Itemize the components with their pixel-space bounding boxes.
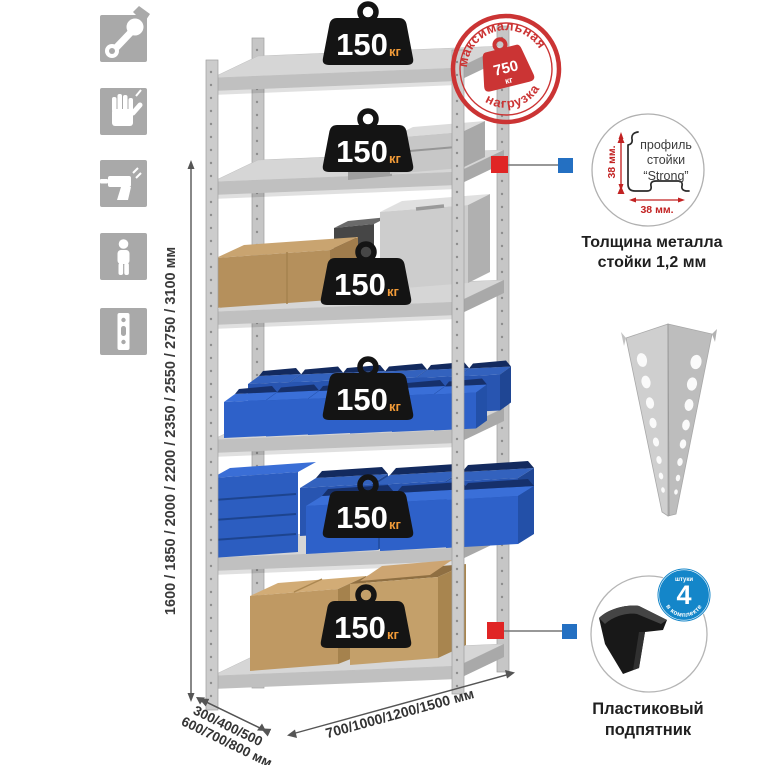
marker-blue-bottom: [562, 624, 577, 639]
product-infographic: 1600 / 1850 / 2000 / 2200 / 2350 / 2550 …: [0, 0, 765, 765]
height-dimension: 1600 / 1850 / 2000 / 2200 / 2350 / 2550 …: [163, 160, 195, 702]
svg-text:150: 150: [334, 610, 386, 645]
gloves-icon: [100, 88, 147, 135]
side-icon-column: [100, 6, 150, 355]
depth-dimension: 300/400/500 600/700/800 мм: [179, 697, 281, 765]
svg-text:кг: кг: [389, 151, 402, 166]
svg-text:кг: кг: [389, 517, 402, 532]
foot-caption-1: Пластиковый: [592, 700, 703, 718]
marker-blue-top: [558, 158, 573, 173]
shelf-load-badge: 150 кг: [323, 111, 414, 172]
profile-dim-bottom: 38 мм.: [640, 204, 673, 216]
profile-detail: 38 мм. 38 мм. профиль стойки “Strong”: [592, 114, 704, 226]
load-value: 150: [336, 27, 388, 62]
svg-text:кг: кг: [387, 284, 400, 299]
upright-profile-icon: [100, 308, 147, 355]
profile-label-1: профиль: [640, 138, 692, 152]
profile-dim-side: 38 мм.: [606, 145, 618, 178]
profile-caption-2: стойки 1,2 мм: [598, 254, 707, 271]
profile-label-3: “Strong”: [643, 169, 688, 183]
infographic-svg: 1600 / 1850 / 2000 / 2200 / 2350 / 2550 …: [0, 0, 765, 765]
profile-caption-1: Толщина металла: [581, 234, 722, 251]
kit-badge-value: 4: [676, 580, 691, 610]
load-unit: кг: [389, 44, 402, 59]
kit-count-badge: штуки 4 в комплекте: [658, 569, 710, 621]
marker-red-top: [491, 156, 508, 173]
svg-text:150: 150: [336, 382, 388, 417]
svg-text:150: 150: [336, 500, 388, 535]
svg-text:150: 150: [334, 267, 386, 302]
height-dimension-label: 1600 / 1850 / 2000 / 2200 / 2350 / 2550 …: [163, 247, 179, 615]
svg-text:кг: кг: [387, 627, 400, 642]
wrench-icon: [100, 6, 150, 62]
svg-text:150: 150: [336, 134, 388, 169]
shelf-load-badge: 150 кг: [323, 4, 414, 65]
profile-label-2: стойки: [647, 153, 685, 167]
foot-caption-2: подпятник: [605, 721, 692, 739]
drill-icon: [100, 160, 147, 207]
person-icon: [100, 233, 147, 280]
svg-text:кг: кг: [389, 399, 402, 414]
width-dimension-label: 700/1000/1200/1500 мм: [324, 685, 476, 741]
marker-red-bottom: [487, 622, 504, 639]
angle-post-image: [621, 324, 717, 516]
